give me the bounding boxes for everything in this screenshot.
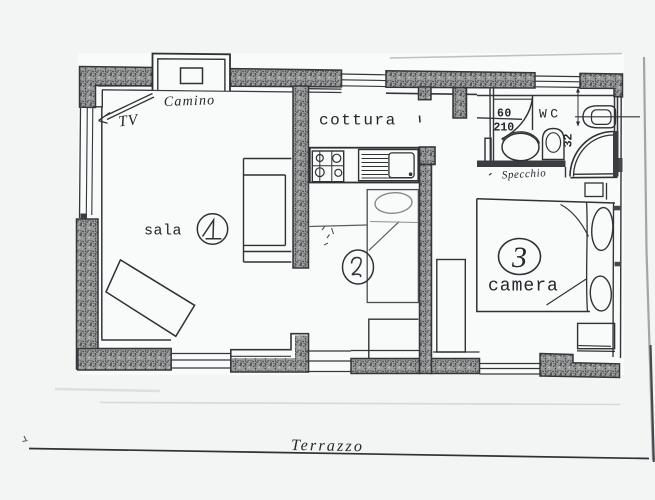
svg-text:TV: TV bbox=[117, 111, 140, 130]
svg-text:sala: sala bbox=[144, 223, 182, 240]
svg-text:camera: camera bbox=[488, 277, 559, 297]
svg-text:Specchio: Specchio bbox=[502, 167, 547, 181]
svg-text:3: 3 bbox=[511, 241, 527, 274]
svg-text:32: 32 bbox=[563, 134, 576, 148]
svg-text:210: 210 bbox=[494, 122, 515, 135]
svg-text:WC: WC bbox=[539, 107, 562, 122]
svg-text:cottura: cottura bbox=[319, 112, 397, 130]
svg-text:Terrazzo: Terrazzo bbox=[291, 437, 364, 455]
svg-text:Camino: Camino bbox=[164, 93, 216, 110]
